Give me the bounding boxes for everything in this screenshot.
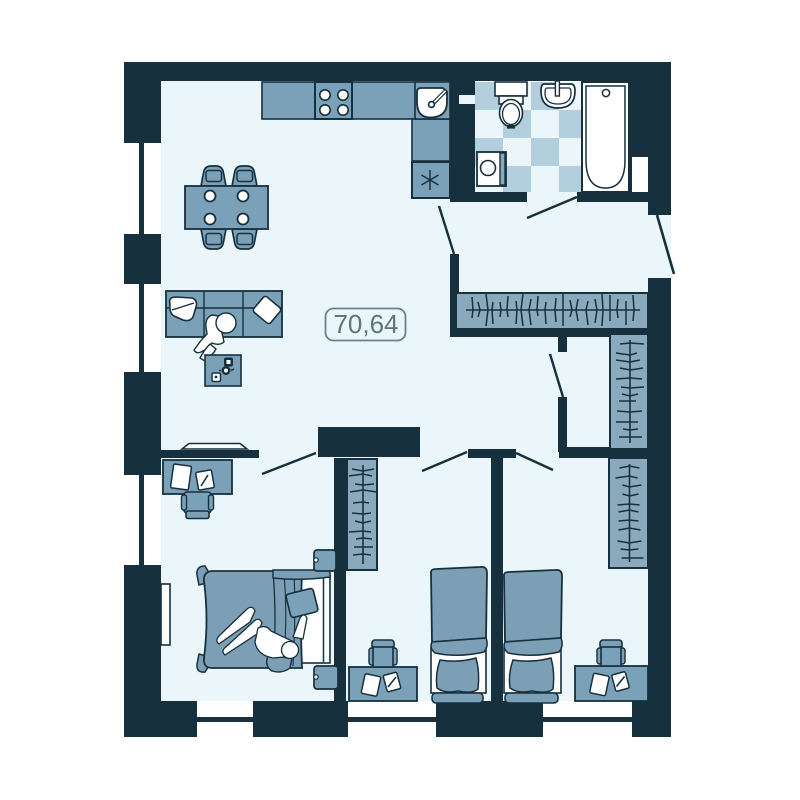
svg-text:70,64: 70,64: [333, 309, 398, 339]
